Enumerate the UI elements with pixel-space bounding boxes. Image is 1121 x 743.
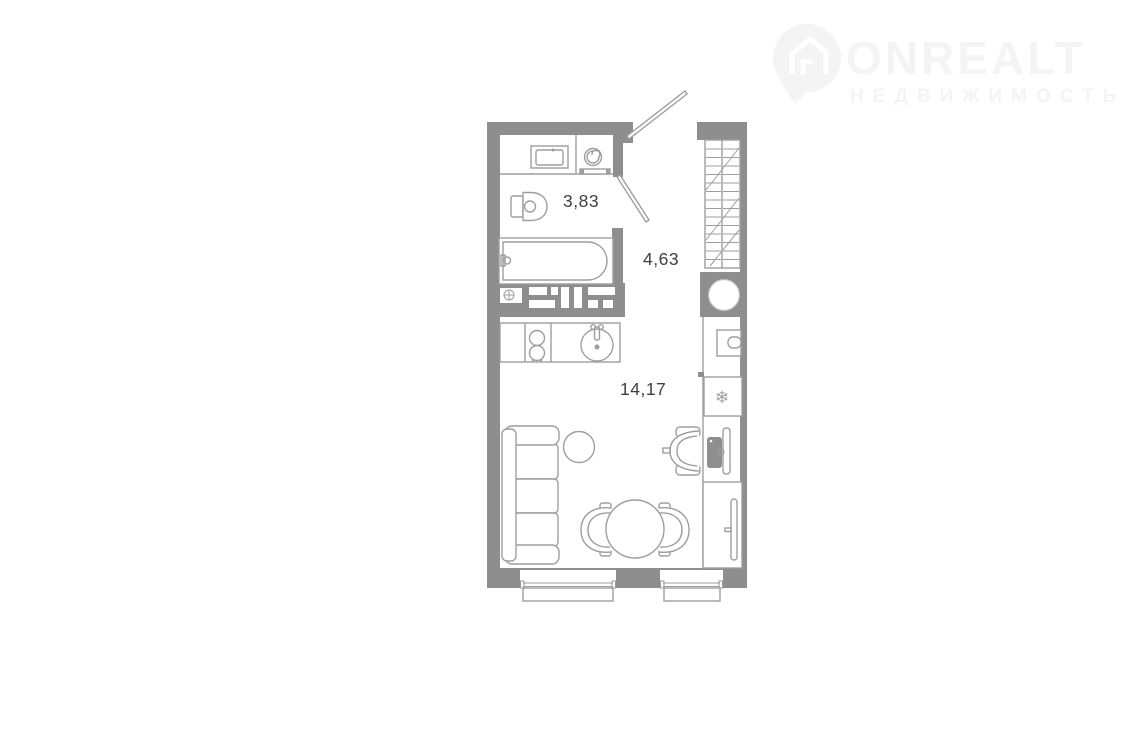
ventilation-duct (709, 280, 740, 311)
area-label-hallway: 4,63 (643, 249, 679, 269)
bathroom: 3,83 (499, 135, 649, 284)
watermark-logo: ONREALT НЕДВИЖИМОСТЬ (773, 24, 1121, 107)
wall-cabinet (717, 330, 741, 356)
entry-door (627, 91, 687, 139)
page: ONREALT НЕДВИЖИМОСТЬ (0, 0, 1121, 743)
desk-monitor (707, 437, 722, 468)
dining-table (606, 500, 664, 558)
wardrobe (705, 140, 740, 268)
side-table (564, 432, 595, 463)
bathtub (499, 238, 613, 284)
snowflake-icon: ❄ (715, 388, 729, 408)
area-label-bathroom: 3,83 (563, 191, 599, 211)
washing-machine (580, 149, 610, 175)
window-left (520, 570, 616, 601)
sofa (502, 426, 559, 564)
desk-chair (663, 427, 700, 475)
bathroom-door (617, 175, 649, 222)
storage-cabinet (703, 482, 742, 568)
window-right (660, 570, 723, 601)
logo-pin-icon (773, 24, 841, 104)
refrigerator: ❄ (704, 377, 742, 416)
kitchen-counter (500, 323, 620, 362)
tagline-text: НЕДВИЖИМОСТЬ (850, 86, 1121, 107)
brand-text: ONREALT (846, 32, 1086, 84)
toilet (511, 193, 547, 221)
area-label-living: 14,17 (620, 379, 666, 399)
door-stop (698, 372, 704, 377)
floor-plan-svg: ONREALT НЕДВИЖИМОСТЬ (0, 0, 1121, 743)
bathroom-sink (531, 146, 568, 168)
